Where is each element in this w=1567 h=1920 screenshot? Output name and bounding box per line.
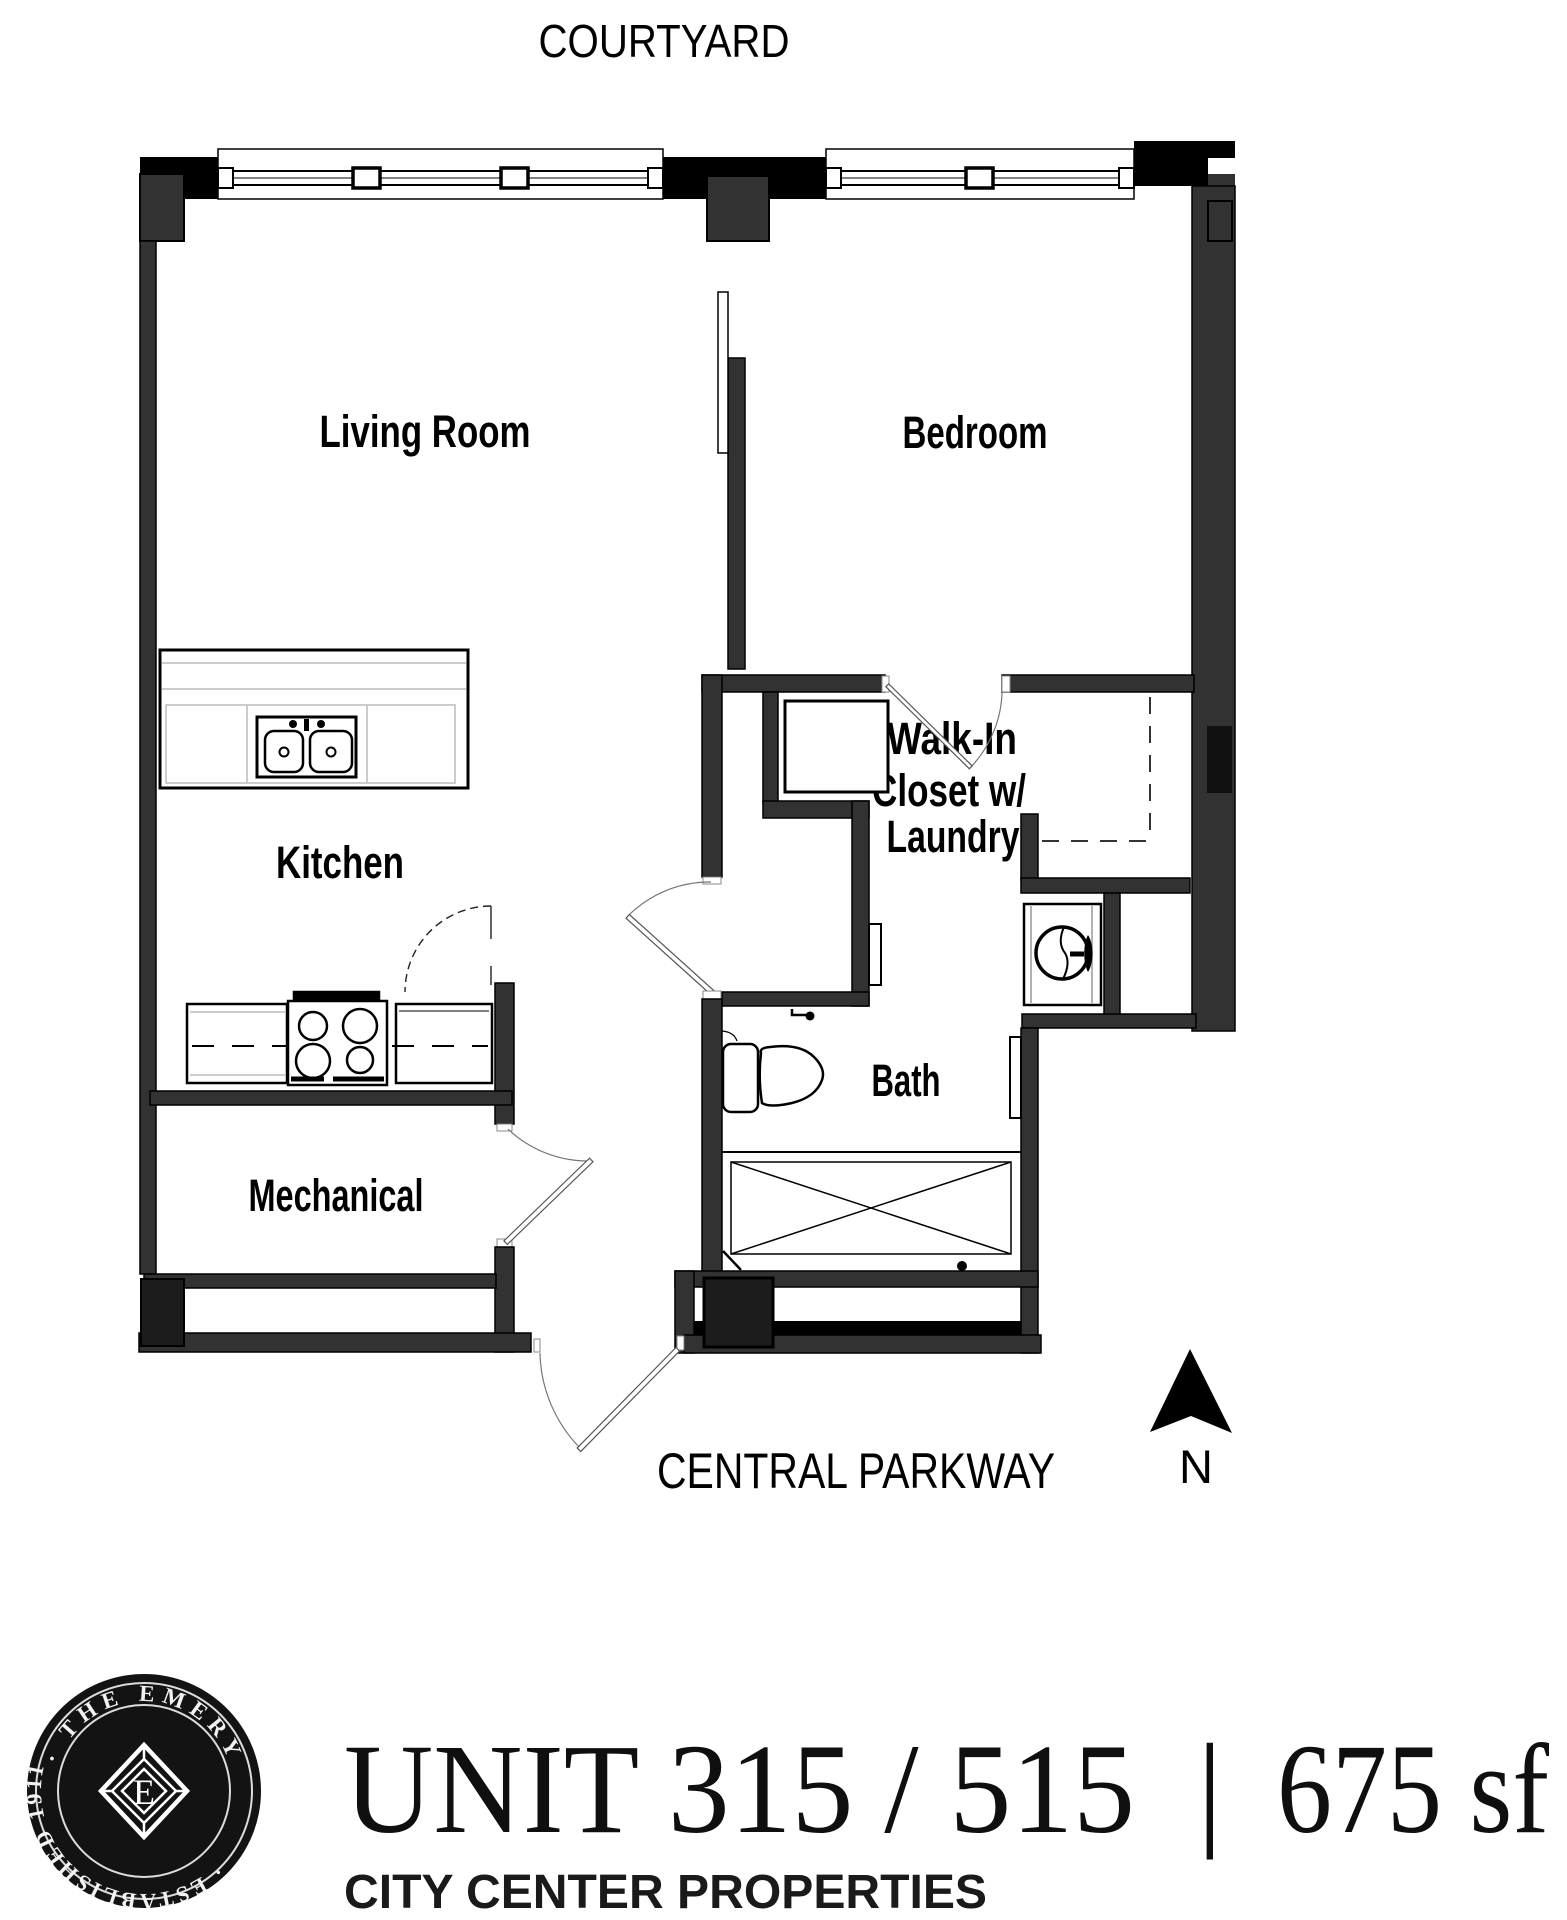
svg-text:E: E — [133, 1772, 155, 1812]
svg-text:CITY CENTER PROPERTIES: CITY CENTER PROPERTIES — [344, 1866, 987, 1919]
svg-text:675 sf: 675 sf — [1277, 1718, 1549, 1860]
svg-text:N: N — [1179, 1440, 1213, 1493]
svg-text:Bath: Bath — [872, 1055, 941, 1106]
svg-text:UNIT 315 / 515: UNIT 315 / 515 — [344, 1718, 1135, 1860]
svg-text:Living Room: Living Room — [320, 406, 531, 457]
svg-text:CENTRAL PARKWAY: CENTRAL PARKWAY — [657, 1443, 1055, 1499]
svg-text:Kitchen: Kitchen — [276, 837, 404, 888]
svg-text:COURTYARD: COURTYARD — [539, 15, 790, 67]
svg-text:|: | — [1197, 1718, 1223, 1860]
svg-text:Closet w/: Closet w/ — [872, 765, 1026, 816]
svg-text:Bedroom: Bedroom — [903, 407, 1048, 458]
svg-text:Laundry: Laundry — [887, 811, 1020, 862]
svg-text:Mechanical: Mechanical — [249, 1170, 424, 1221]
